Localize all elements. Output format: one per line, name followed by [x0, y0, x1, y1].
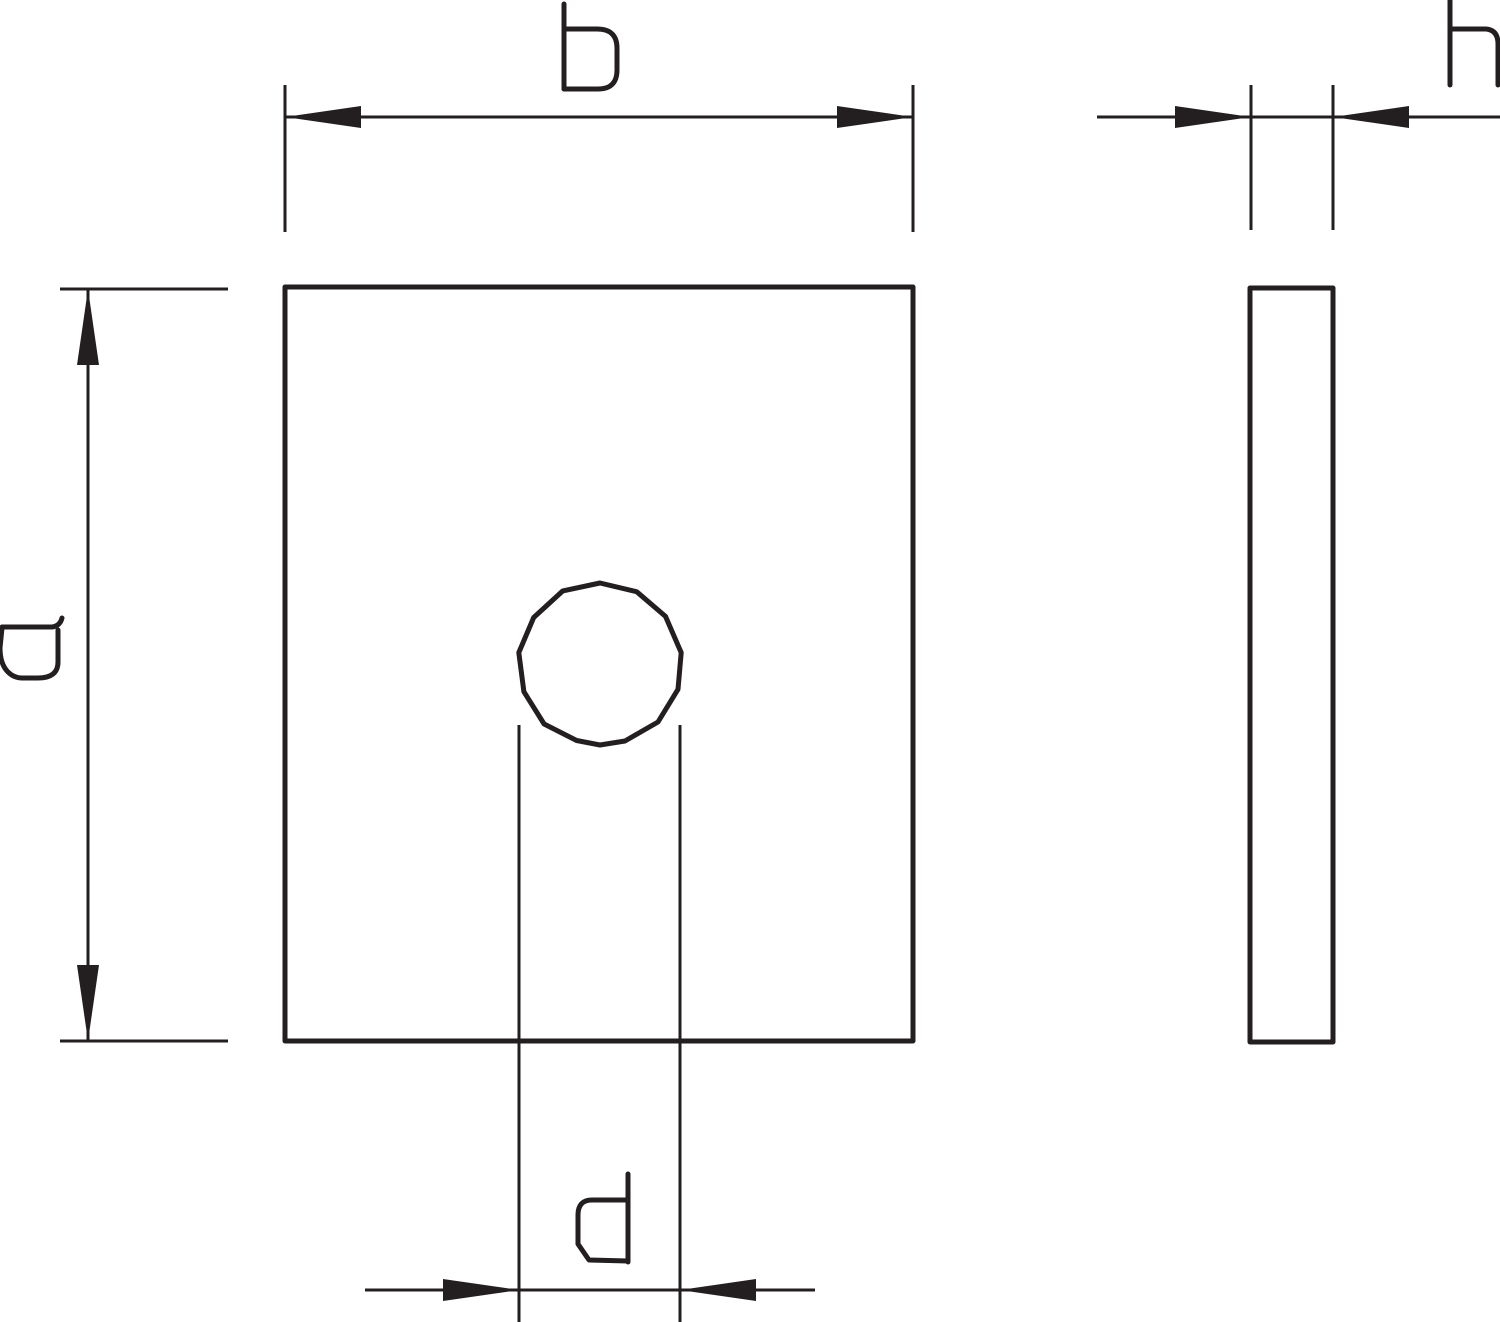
dimension-drawing-svg: b h a: [0, 0, 1500, 1322]
arrowhead-inward-left-icon: [443, 1279, 519, 1301]
label-h-shoulder: [1450, 29, 1498, 85]
dimension-b: b: [285, 4, 913, 232]
arrowhead-down-icon: [77, 965, 99, 1041]
arrowhead-inward-left-icon: [1175, 106, 1251, 128]
arrowhead-left-icon: [285, 106, 361, 128]
arrowhead-inward-right-icon: [1333, 106, 1409, 128]
dimension-d: d: [365, 725, 815, 1322]
dimension-a: a: [0, 289, 228, 1041]
arrowhead-inward-right-icon: [680, 1279, 756, 1301]
technical-drawing: b h a: [0, 0, 1500, 1322]
label-b-bowl: [564, 29, 617, 89]
dimension-label-b: b: [564, 4, 617, 89]
dimension-h: h: [1097, 0, 1500, 230]
front-view: [285, 287, 913, 1041]
label-a-bowl-rotated: [0, 628, 58, 678]
plate-outline: [285, 287, 913, 1041]
label-d-bowl: [578, 1200, 628, 1261]
hole-circle: [519, 583, 681, 745]
dimension-label-d: d: [578, 1174, 628, 1262]
arrowhead-up-icon: [77, 289, 99, 365]
arrowhead-right-icon: [837, 106, 913, 128]
side-profile-outline: [1250, 288, 1333, 1042]
dimension-label-h: h: [1450, 0, 1498, 85]
dimension-label-a: a: [0, 618, 62, 678]
label-a-stem-rotated: [2, 618, 62, 627]
side-view: [1250, 288, 1333, 1042]
